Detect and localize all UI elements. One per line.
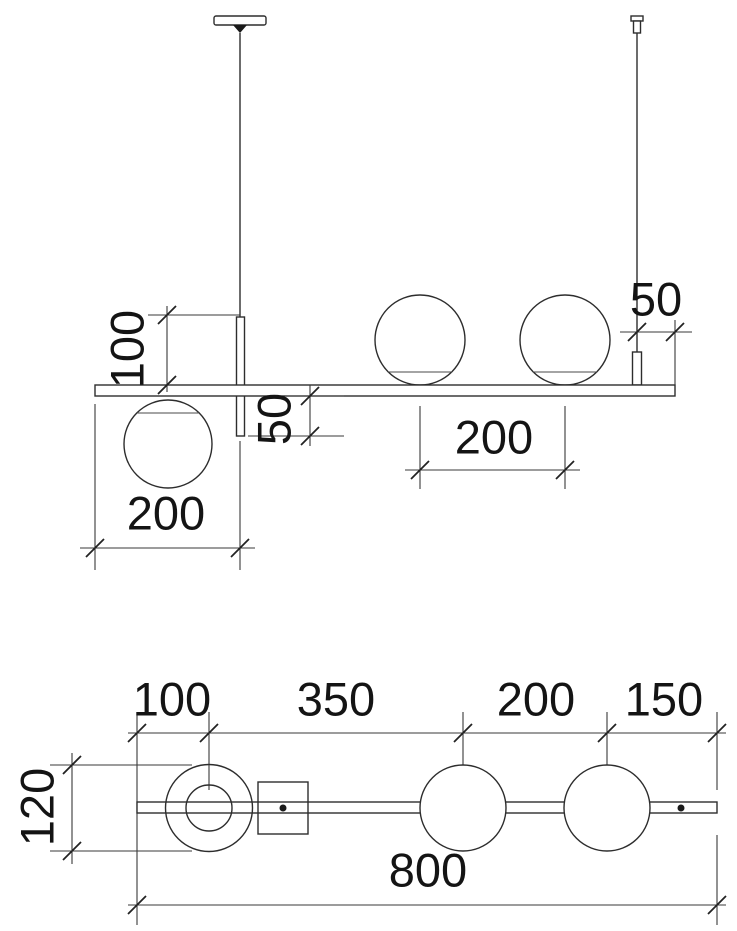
dimension-label-50: 50: [630, 273, 682, 326]
dimension-chain-top: 100 350 200 150: [128, 673, 726, 743]
glass-sphere-plan-1: [420, 765, 506, 851]
dimension-upper-sphere-spacing: 200: [405, 406, 580, 489]
dimension-overall-length: 800: [128, 844, 726, 915]
pendant-lamp-technical-drawing: 100 50 50 200: [0, 0, 737, 931]
front-elevation-view: 100 50 50 200: [80, 16, 692, 570]
lamp-bar-front: [95, 385, 675, 396]
ceiling-canopy: [214, 16, 266, 25]
dimension-cable-inset: 50: [620, 273, 692, 386]
dimension-label-800: 800: [389, 844, 467, 897]
dimension-label-200: 200: [455, 411, 533, 464]
fitting-cap: [631, 16, 643, 21]
dimension-label-200: 200: [127, 487, 205, 540]
dimension-label-100: 100: [101, 310, 154, 388]
dimension-label-150: 150: [625, 673, 703, 726]
cable-point-dot: [678, 805, 685, 812]
cable-stub-tube: [633, 352, 642, 385]
dimension-label-200: 200: [497, 673, 575, 726]
dimension-label-50: 50: [248, 393, 301, 445]
suspension-rod-tube: [237, 317, 245, 436]
plan-view: 100 350 200 150 120: [11, 673, 727, 926]
drawing-canvas: 100 50 50 200: [0, 0, 737, 931]
dimension-label-120: 120: [11, 768, 64, 846]
dimension-label-350: 350: [297, 673, 375, 726]
canopy-cone: [233, 25, 247, 33]
dimension-label-100: 100: [133, 673, 211, 726]
dimension-rod-above-bar: 100: [101, 306, 241, 394]
cable-ceiling-fitting: [631, 16, 643, 33]
fitting-body: [634, 21, 641, 33]
fixing-point-dot: [280, 805, 287, 812]
glass-sphere-plan-2: [564, 765, 650, 851]
